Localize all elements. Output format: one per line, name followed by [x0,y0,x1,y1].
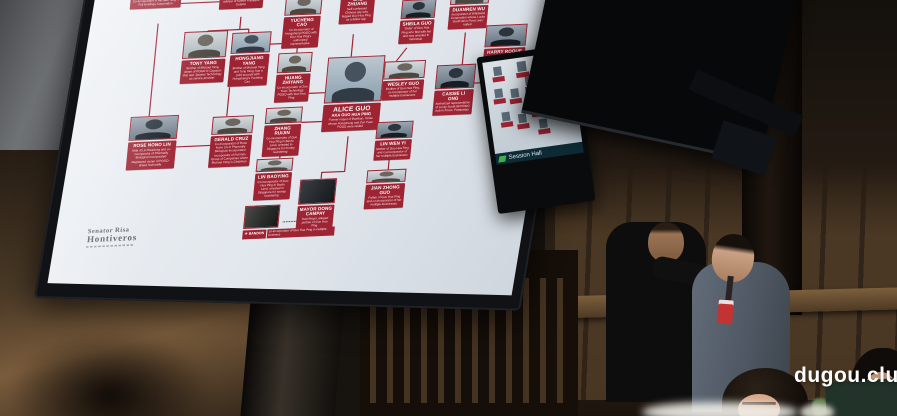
chart-person-node: GERALD CRUZ Co-incorporator of Rose Nono… [208,115,254,168]
chart-person-node: MICHAEL YANG Presidential economic advis… [219,0,267,10]
chart-person-node: HUANG ZHIYANG Co-incorporator of Zun Yua… [274,52,313,103]
person-caption: Former mayor of Bamban, Tarlac whose Hon… [323,117,377,130]
person-plate: DUANREN WU Incorporator of Whirlwind Cor… [447,5,488,30]
person-photo [400,0,436,19]
person-plate: SHE ZHUANG Self-confessed Chinese spy wh… [338,0,375,24]
person-caption: Wife of Lin Weedong and co-incorporator … [129,148,174,161]
chart-person-node: ALICE GUO AKA GUO HUA PING Former mayor … [321,55,385,132]
person-photo [435,64,476,90]
senator-logo: Senator Risa Hontiveros [86,225,138,248]
person-caption: Mother of Guo Hua Ping and co-incorporat… [375,146,409,158]
person-caption-2: Registered owner of POGO-linked Technoli… [128,159,173,168]
person-photo [366,169,406,184]
chart-person-node: ROSE NONO LIN Wife of Lin Weedong and co… [126,115,179,170]
person-caption: Brother of Michael Yang and Tony Yang, h… [229,66,266,85]
person-caption: Incorporator of Whirlwind Corporation wh… [450,12,486,28]
person-name: ZHANG RUIJIN [266,125,300,136]
person-photo-row [383,60,426,80]
person-caption: Father of Guo Hua Ping and co-incorporat… [366,195,402,207]
person-photo [265,106,303,124]
person-caption: Brother of Michael Yang, owner of POGO i… [182,66,223,82]
watermark: dugou.club [794,364,897,388]
person-photo [129,115,179,141]
person-photo-row [129,115,179,141]
person-photo-row [182,30,228,59]
person-photo [375,121,413,140]
chart-person-node: JIAN ZHONG GUO Father of Guo Hua Ping an… [364,169,407,210]
person-photo-row [211,115,254,135]
senator-logo-line2: Hontiveros [87,232,138,245]
person-caption-2: Incorporator of Full Win Group of Compan… [210,153,248,165]
person-photo-row [324,55,386,103]
person-caption: Brother of Guo Hua Ping, co-incorporator… [383,86,421,98]
person-plate: LIN WEN YI Mother of Guo Hua Ping and co… [373,139,412,160]
person-photo [182,30,228,59]
event-photo-node: ✈ BANDON co-incorporator of Guo Hua Ping… [242,202,337,239]
person-plate: CASSIE LI ONG Authorized representative … [432,89,473,115]
chart-person-node: DUANREN WU Incorporator of Whirlwind Cor… [447,0,491,30]
chart-person-node: LIN BAOYING Co-incorporator of Guo Hua P… [253,158,294,201]
person-photo-row [375,121,413,140]
person-plate: SHEILA GUO 'Sister' of Guo Hua Ping who … [398,19,435,44]
person-photo-row [284,0,323,16]
man-in-suit-head [648,222,684,262]
person-photo-row [400,0,436,19]
chart-person-node: WESLEY GUO Brother of Guo Hua Ping, co-i… [381,60,426,101]
person-plate: MICHAEL YANG Presidential economic advis… [219,0,264,10]
person-photo-row [298,178,337,205]
person-plate: TONY YANG Brother of Michael Yang, owner… [180,59,226,84]
monitor-screen: LIM WEEDONG Co-incorporator of Michael Y… [47,0,565,295]
person-plate: ALICE GUO AKA GUO HUA PING Former mayor … [321,103,381,132]
person-plate: JIAN ZHONG GUO Father of Guo Hua Ping an… [364,183,405,209]
person-photo-row [366,169,406,184]
person-name: HUANG ZHIYANG [277,75,308,86]
person-photo-row [277,52,313,73]
chart-person-node: ZHANG RUIJIN Co-incorporator of Guo Hua … [262,106,303,157]
chart-person-node: HONGJIANG YANG Brother of Michael Yang a… [227,31,271,87]
person-caption: Co-incorporator of Hongsheng POGO with G… [283,28,317,47]
person-photo [230,31,271,54]
chart-person-node: YUCHENG CAO Co-incorporator of Hongsheng… [281,0,323,49]
chart-person-node: LIN WEN YI Mother of Guo Hua Ping and co… [373,121,413,161]
chart-person-node: TONY YANG Brother of Michael Yang, owner… [180,30,229,84]
person-plate: GERALD CRUZ Co-incorporator of Rose Nono… [208,134,252,167]
person-name: JIAN ZHONG GUO [367,185,403,196]
photo-scene: LIM WEEDONG Co-incorporator of Michael Y… [0,0,897,416]
person-name: HONGJIANG YANG [231,55,267,66]
person-caption: Co-incorporator of Michael Yang It Full … [132,0,179,7]
red-id-badge [717,300,734,325]
chart-person-node: LIM WEEDONG Co-incorporator of Michael Y… [130,0,185,9]
person-photo [256,158,294,173]
person-caption: Self-confessed Chinese spy who tagged Gu… [341,7,373,22]
person-photo [284,0,323,16]
person-photo-row [435,64,476,90]
person-name: YUCHENG CAO [285,17,319,28]
blurred-papers [642,402,798,416]
event-photo [243,204,280,228]
person-caption: Authorized representative of Lucky South… [434,101,470,113]
person-plate: WESLEY GUO Brother of Guo Hua Ping, co-i… [381,79,424,101]
person-photo-row [256,158,294,173]
person-caption: Co-incorporator of Guo Hua Ping in Baofu… [264,136,298,155]
person-photo [484,23,527,47]
person-photo-row [265,106,303,124]
person-photo-row [484,23,527,47]
person-plate: ZHANG RUIJIN Co-incorporator of Guo Hua … [262,124,302,157]
plane-icon-logo: ✈ BANDON [242,229,266,239]
person-photo [211,115,254,135]
chart-person-node: CASSIE LI ONG Authorized representative … [432,64,476,116]
plane-icon: ✈ [245,232,248,236]
person-plate: ROSE NONO LIN Wife of Lin Weedong and co… [126,140,177,170]
person-caption: Presidential economic adviser of former … [221,0,262,7]
person-caption: Co-incorporator of Zun Yuan Technology P… [276,85,308,100]
person-caption: 'Sister' of Guo Hua Ping who fled with h… [400,27,432,42]
person-plate: YUCHENG CAO Co-incorporator of Hongsheng… [281,16,321,49]
person-caption: Co-incorporator of Guo Hua Ping in Baofu… [255,180,289,199]
person-photo [383,60,426,80]
person-plate: HONGJIANG YANG Brother of Michael Yang a… [227,54,269,87]
person-plate: LIM WEEDONG Co-incorporator of Michael Y… [130,0,182,9]
session-hall-icon [498,155,506,162]
blurred-object [800,404,834,416]
person-plate: HUANG ZHIYANG Co-incorporator of Zun Yua… [274,73,311,103]
person-name: CASSIE LI ONG [436,91,472,102]
session-hall-label: Session Hall [508,150,542,161]
chart-person-node: SHE ZHUANG Self-confessed Chinese spy wh… [338,0,378,24]
person-plate: LIN BAOYING Co-incorporator of Guo Hua P… [253,172,292,200]
person-photo [298,178,337,205]
person-photo [324,55,386,103]
chart-person-node: SHEILA GUO 'Sister' of Guo Hua Ping who … [398,0,437,44]
person-photo [277,52,313,73]
person-photo-row [230,31,271,54]
person-caption: Co-incorporator of Rose Nono Lin in Phar… [211,142,249,154]
